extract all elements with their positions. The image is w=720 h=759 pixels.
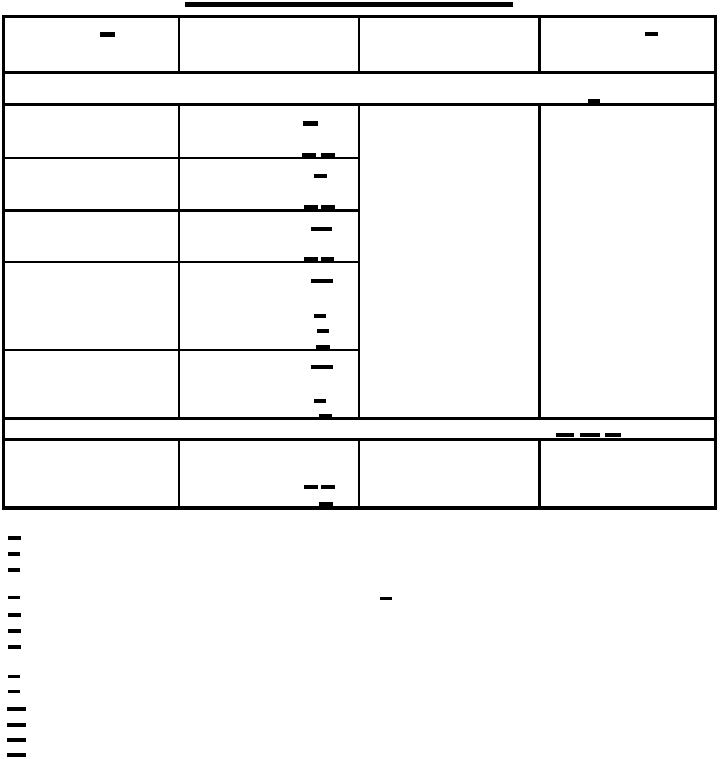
dash-mark	[8, 613, 21, 617]
last-row	[5, 441, 714, 506]
document-page	[0, 0, 720, 759]
dash-mark	[8, 596, 20, 599]
dash-mark	[311, 279, 333, 283]
dash-mark	[8, 645, 21, 649]
body-col1-rule	[178, 106, 180, 417]
body-row3-rule	[2, 261, 359, 263]
body-row1-rule	[2, 157, 359, 159]
body-col3-merged-cell	[360, 106, 538, 417]
dash-mark	[311, 227, 332, 231]
dash-mark	[314, 174, 327, 178]
dash-mark	[7, 707, 26, 711]
body-col4-merged-cell	[541, 106, 714, 417]
body-row4-rule	[2, 349, 359, 351]
dash-mark	[8, 675, 20, 678]
header-cell-3	[360, 18, 538, 71]
dash-mark	[7, 723, 26, 727]
dash-mark	[314, 314, 326, 318]
dash-mark	[8, 536, 21, 540]
header-cell-1	[5, 18, 178, 71]
dash-mark	[7, 738, 26, 742]
table-border-right	[714, 15, 717, 510]
header-cell-2	[180, 18, 358, 71]
body-row2-rule	[2, 209, 359, 212]
dash-mark	[311, 365, 333, 369]
dash-mark	[303, 121, 318, 126]
dash-mark	[317, 329, 329, 333]
spanning-band-2	[5, 420, 714, 438]
dash-mark	[314, 399, 326, 403]
dash-mark	[8, 690, 20, 693]
header-cell-4	[541, 18, 714, 71]
table-border-bottom	[2, 506, 717, 510]
dash-mark	[380, 597, 392, 600]
dash-mark	[8, 629, 21, 633]
spanning-band-1	[5, 74, 714, 103]
dash-mark	[8, 568, 20, 572]
dash-mark	[7, 753, 26, 757]
title-underline	[185, 2, 513, 7]
dash-mark	[8, 552, 20, 556]
